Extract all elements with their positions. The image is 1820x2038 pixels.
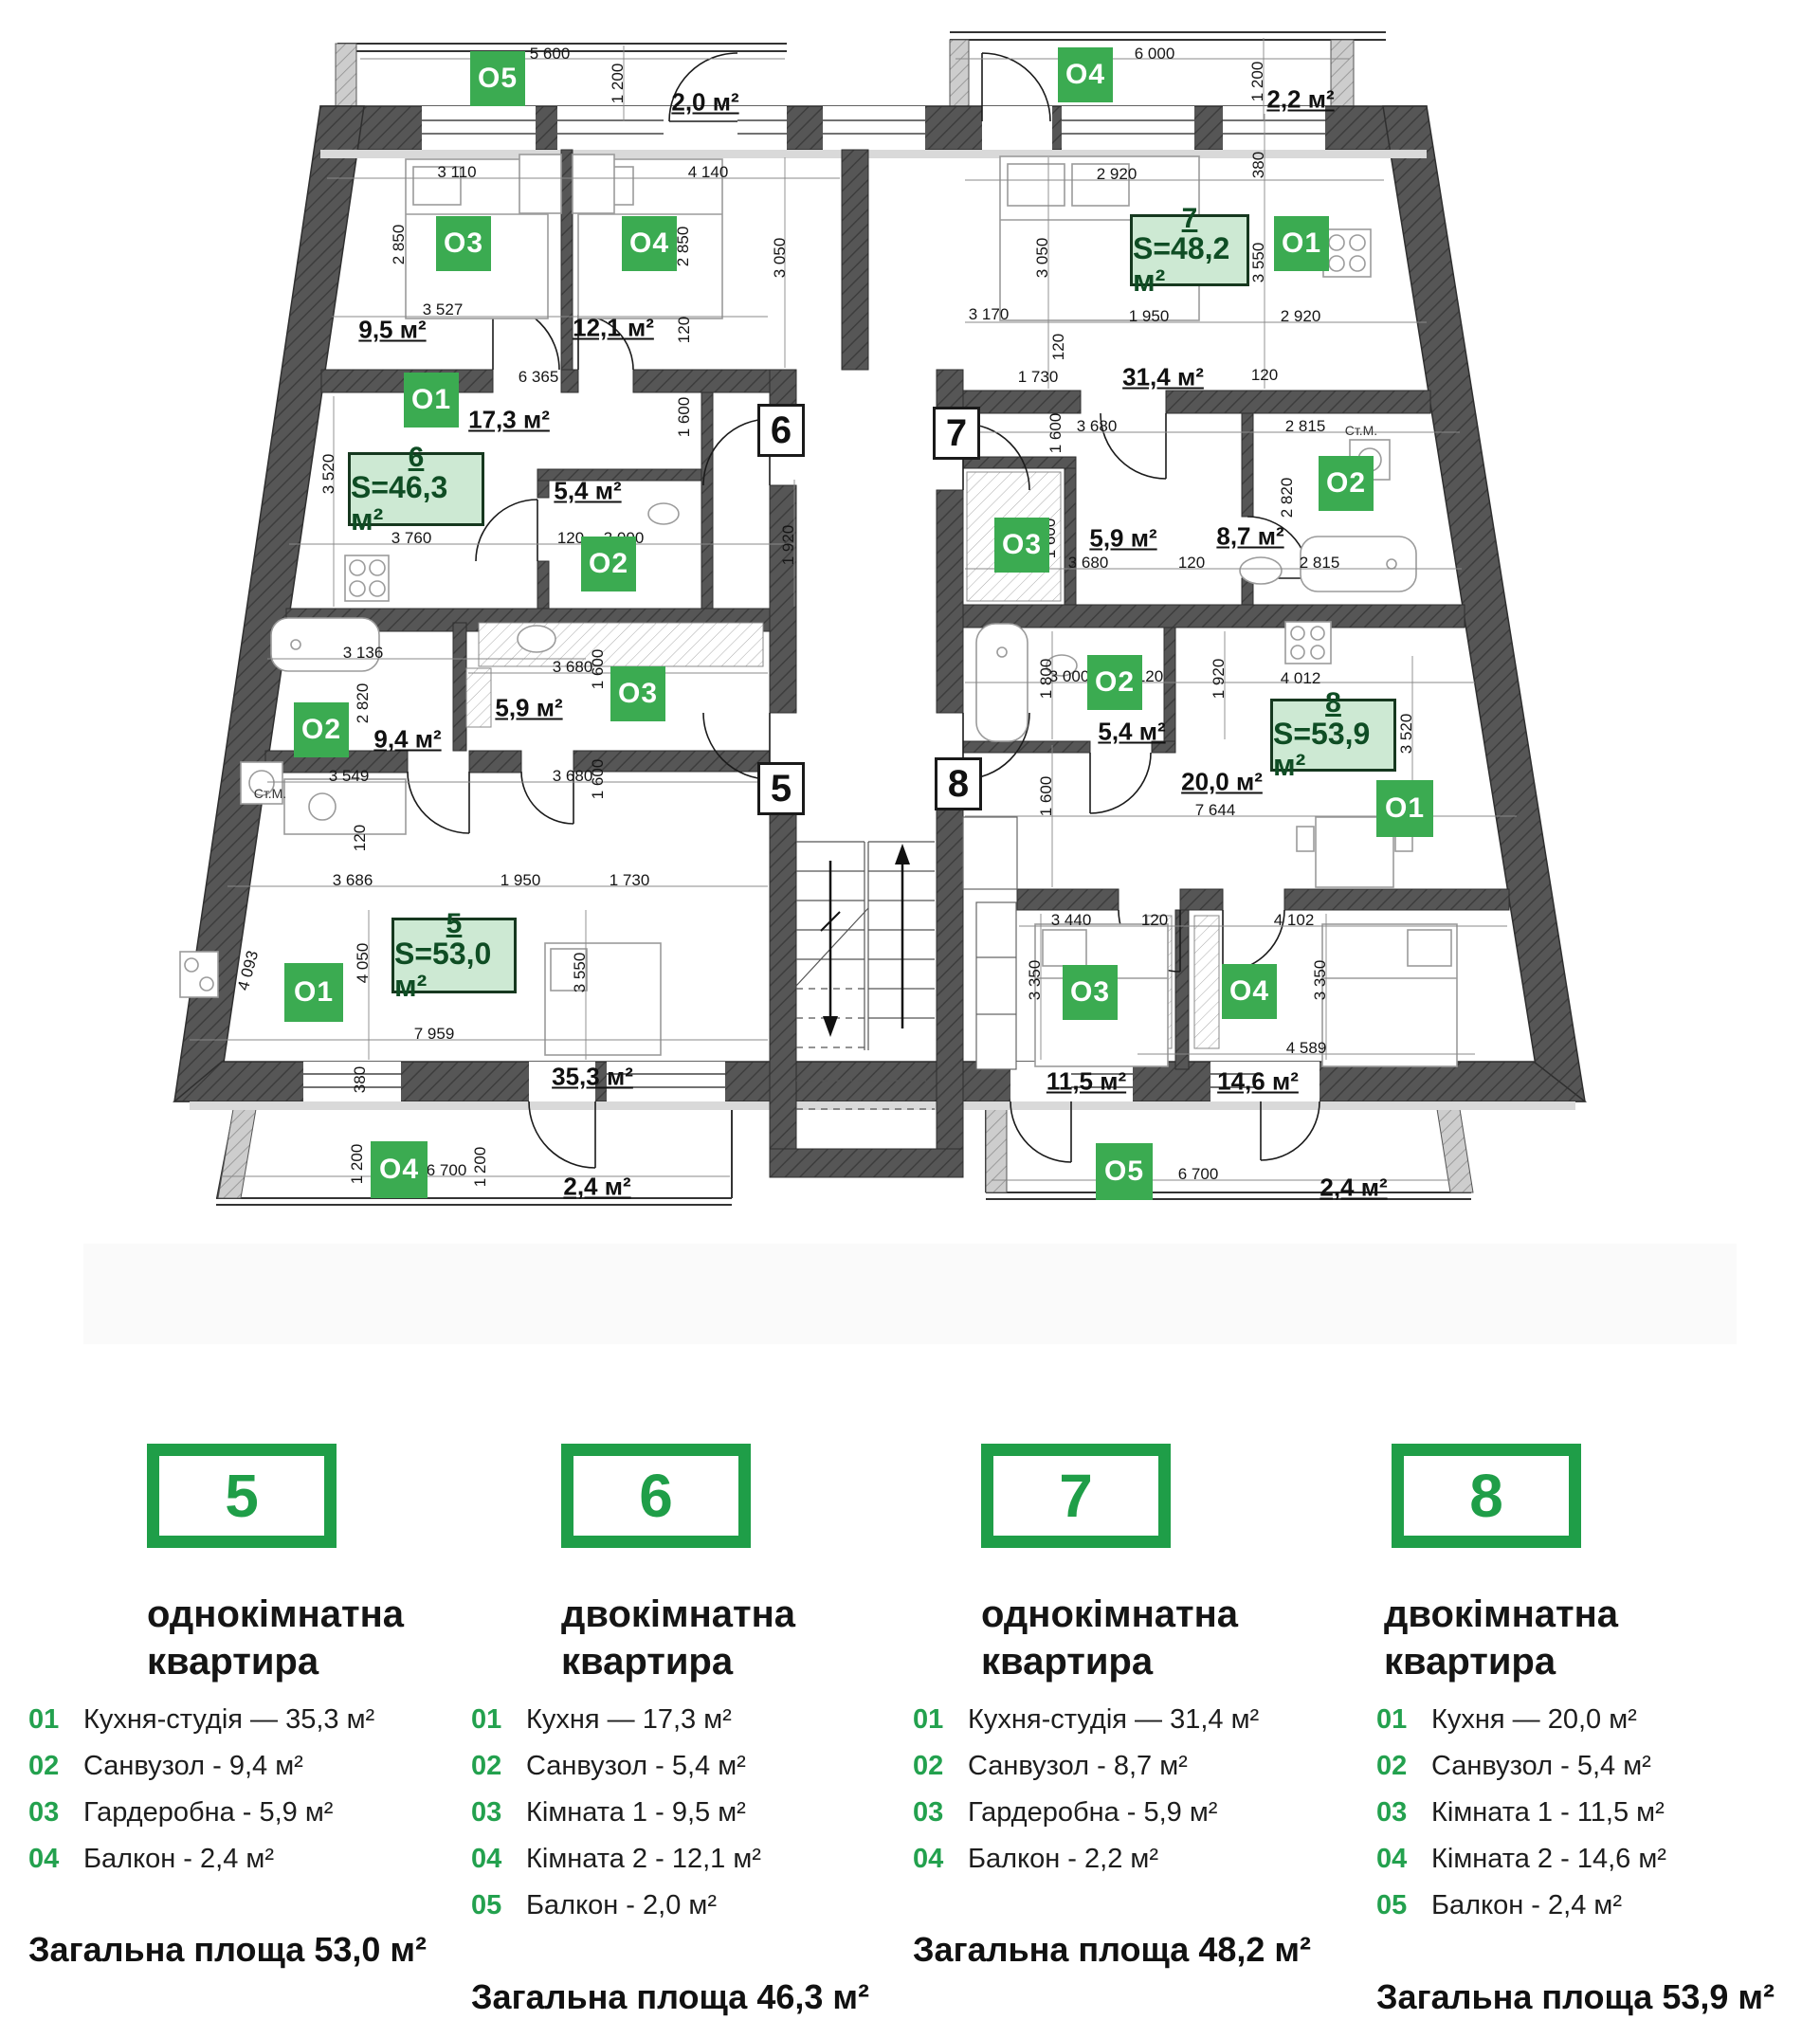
apartment-number: 6 bbox=[409, 443, 425, 473]
legend-room-code: 02 bbox=[471, 1751, 526, 1782]
legend-room-code: 01 bbox=[28, 1704, 83, 1736]
room-number-badge: O2 bbox=[581, 537, 636, 591]
legend-room-row: 03Гардеробна - 5,9 м² bbox=[28, 1797, 333, 1829]
dimension-label: 120 bbox=[1251, 366, 1278, 385]
dimension-label: 3 440 bbox=[1051, 911, 1092, 930]
apartment-area-box: 8S=53,9 м² bbox=[1270, 699, 1396, 772]
room-number-badge: O4 bbox=[622, 216, 677, 271]
dimension-label-vertical: 3 050 bbox=[1033, 238, 1052, 279]
dimension-label-vertical: 1 200 bbox=[609, 64, 628, 104]
room-number-badge: O5 bbox=[1096, 1143, 1153, 1200]
apartment-door-badge: 7 bbox=[933, 407, 980, 460]
apartment-area-box: 6S=46,3 м² bbox=[348, 452, 484, 526]
room-number-badge: O1 bbox=[284, 963, 343, 1022]
apartment-door-badge: 6 bbox=[757, 404, 805, 457]
room-number-badge: O4 bbox=[371, 1141, 428, 1198]
dimension-label-vertical: 120 bbox=[351, 825, 370, 851]
room-number-badge: O5 bbox=[470, 51, 525, 106]
legend-unit-type: квартира bbox=[561, 1638, 733, 1685]
legend-room-text: Кухня-студія — 35,3 м² bbox=[83, 1704, 374, 1736]
dimension-label: 1 950 bbox=[1129, 307, 1170, 326]
room-number-badge: O1 bbox=[404, 373, 459, 428]
legend-room-row: 05Балкон - 2,4 м² bbox=[1376, 1890, 1622, 1921]
room-area-label: 8,7 м² bbox=[1216, 522, 1283, 552]
dimension-label: 3 680 bbox=[1068, 554, 1109, 573]
legend-unit-type: однокімнатна bbox=[147, 1591, 404, 1638]
room-number-badge: O2 bbox=[294, 702, 349, 757]
legend-room-code: 04 bbox=[28, 1844, 83, 1875]
legend-room-row: 05Балкон - 2,0 м² bbox=[471, 1890, 717, 1921]
dimension-label-vertical: 3 520 bbox=[319, 454, 338, 495]
dimension-label-vertical: 1 920 bbox=[779, 525, 798, 566]
apartment-door-badge: 5 bbox=[757, 762, 805, 815]
legend-unit-badge-7: 7 bbox=[981, 1444, 1171, 1548]
legend-room-row: 02Санвузол - 9,4 м² bbox=[28, 1751, 303, 1782]
legend-room-code: 05 bbox=[471, 1890, 526, 1921]
legend-room-text: Кухня — 20,0 м² bbox=[1431, 1704, 1637, 1736]
dimension-label: 3 686 bbox=[333, 871, 373, 890]
legend-total-area: Загальна площа 53,0 м² bbox=[28, 1930, 427, 1970]
legend-unit-type: однокімнатна bbox=[981, 1591, 1238, 1638]
room-number-badge: O4 bbox=[1058, 47, 1113, 102]
dimension-label-vertical: 380 bbox=[351, 1066, 370, 1093]
dimension-label-vertical: 3 520 bbox=[1397, 714, 1416, 755]
dimension-label-vertical: 3 550 bbox=[571, 953, 590, 993]
room-area-label: 31,4 м² bbox=[1122, 363, 1204, 392]
dimension-label: 1 730 bbox=[1018, 368, 1059, 387]
legend-room-row: 03Гардеробна - 5,9 м² bbox=[913, 1797, 1217, 1829]
legend-unit-badge-5: 5 bbox=[147, 1444, 337, 1548]
washing-machine-label: Ст.М. bbox=[254, 786, 286, 801]
floorplan-page: 5 6006 0003 1104 1402 9203 5273 1701 950… bbox=[0, 0, 1820, 2038]
apartment-number: 7 bbox=[1182, 204, 1198, 234]
dimension-label-vertical: 1 600 bbox=[675, 397, 694, 438]
legend-room-row: 04Балкон - 2,4 м² bbox=[28, 1844, 274, 1875]
dimension-label: 7 644 bbox=[1195, 801, 1236, 820]
legend-room-code: 03 bbox=[471, 1797, 526, 1829]
dimension-label-vertical: 2 850 bbox=[390, 225, 409, 265]
room-number-badge: O1 bbox=[1376, 780, 1433, 837]
legend-room-text: Санвузол - 8,7 м² bbox=[968, 1751, 1188, 1782]
dimension-label: 4 589 bbox=[1286, 1039, 1327, 1058]
room-number-badge: O2 bbox=[1087, 655, 1142, 710]
dimension-label-vertical: 1 920 bbox=[1210, 659, 1228, 700]
dimension-label: 6 365 bbox=[519, 368, 559, 387]
dimension-label-vertical: 1 800 bbox=[1037, 659, 1056, 700]
legend-room-code: 02 bbox=[913, 1751, 968, 1782]
dimension-label: 3 110 bbox=[437, 163, 476, 182]
dimension-label-vertical: 3 550 bbox=[1249, 243, 1268, 283]
legend-room-code: 05 bbox=[1376, 1890, 1431, 1921]
legend-total-area: Загальна площа 46,3 м² bbox=[471, 1977, 869, 2017]
room-number-badge: O3 bbox=[1063, 965, 1118, 1020]
legend-room-text: Кімната 1 - 11,5 м² bbox=[1431, 1797, 1665, 1829]
legend-room-text: Кухня — 17,3 м² bbox=[526, 1704, 732, 1736]
room-number-badge: O1 bbox=[1274, 216, 1329, 271]
dimension-label: 2 920 bbox=[1281, 307, 1321, 326]
legend-room-text: Кімната 1 - 9,5 м² bbox=[526, 1797, 746, 1829]
legend-room-text: Санвузол - 5,4 м² bbox=[1431, 1751, 1651, 1782]
legend-room-row: 04Балкон - 2,2 м² bbox=[913, 1844, 1158, 1875]
room-area-label: 5,4 м² bbox=[1098, 718, 1165, 747]
room-area-label: 5,4 м² bbox=[554, 477, 621, 506]
legend-room-text: Кімната 2 - 14,6 м² bbox=[1431, 1844, 1666, 1875]
legend-room-text: Кухня-студія — 31,4 м² bbox=[968, 1704, 1259, 1736]
dimension-label: 4 140 bbox=[688, 163, 729, 182]
legend-room-code: 01 bbox=[1376, 1704, 1431, 1736]
dimension-label-vertical: 380 bbox=[1249, 152, 1268, 178]
legend-unit-type: квартира bbox=[147, 1638, 318, 1685]
legend-total-area: Загальна площа 48,2 м² bbox=[913, 1930, 1311, 1970]
legend-room-row: 03Кімната 1 - 11,5 м² bbox=[1376, 1797, 1665, 1829]
dimension-label: 2 815 bbox=[1300, 554, 1340, 573]
legend-room-row: 04Кімната 2 - 12,1 м² bbox=[471, 1844, 761, 1875]
dimension-label: 3 136 bbox=[343, 644, 384, 663]
legend-total-area: Загальна площа 53,9 м² bbox=[1376, 1977, 1774, 2017]
legend-room-text: Балкон - 2,2 м² bbox=[968, 1844, 1158, 1875]
room-area-label: 9,5 м² bbox=[358, 316, 426, 345]
dimension-label-vertical: 3 050 bbox=[771, 238, 790, 279]
legend-room-code: 03 bbox=[1376, 1797, 1431, 1829]
apartment-total-area: S=48,2 м² bbox=[1133, 233, 1247, 297]
legend-room-code: 01 bbox=[913, 1704, 968, 1736]
dimension-label: 3 680 bbox=[553, 658, 593, 677]
legend-room-text: Балкон - 2,0 м² bbox=[526, 1890, 717, 1921]
dimension-label-vertical: 120 bbox=[675, 317, 694, 343]
room-area-label: 2,0 м² bbox=[671, 88, 738, 118]
dimension-label-vertical: 2 850 bbox=[674, 227, 693, 267]
dimension-label: 3 680 bbox=[1077, 417, 1118, 436]
room-number-badge: O4 bbox=[1222, 964, 1277, 1019]
legend-room-code: 03 bbox=[913, 1797, 968, 1829]
dimension-label: 3 549 bbox=[329, 767, 370, 786]
apartment-number: 8 bbox=[1325, 688, 1341, 719]
dimension-label: 3 527 bbox=[423, 300, 464, 319]
legend-unit-type: двокімнатна bbox=[561, 1591, 795, 1638]
room-area-label: 11,5 м² bbox=[1046, 1067, 1126, 1097]
dimension-label-vertical: 2 820 bbox=[1278, 478, 1297, 519]
dimension-label-vertical: 2 820 bbox=[354, 683, 373, 724]
legend-room-text: Санвузол - 5,4 м² bbox=[526, 1751, 746, 1782]
dimension-label: 2 815 bbox=[1285, 417, 1326, 436]
legend-room-row: 01Кухня-студія — 35,3 м² bbox=[28, 1704, 374, 1736]
legend-room-text: Гардеробна - 5,9 м² bbox=[968, 1797, 1217, 1829]
dimension-label: 1 950 bbox=[500, 871, 541, 890]
legend-room-row: 02Санвузол - 8,7 м² bbox=[913, 1751, 1188, 1782]
room-area-label: 14,6 м² bbox=[1217, 1067, 1299, 1097]
legend-room-code: 04 bbox=[1376, 1844, 1431, 1875]
dimension-label-vertical: 3 350 bbox=[1026, 960, 1045, 1001]
dimension-label: 6 700 bbox=[427, 1161, 467, 1180]
dimension-label-vertical: 4 050 bbox=[354, 943, 373, 984]
room-area-label: 2,4 м² bbox=[563, 1173, 630, 1202]
legend-room-row: 01Кухня-студія — 31,4 м² bbox=[913, 1704, 1259, 1736]
apartment-total-area: S=53,9 м² bbox=[1273, 719, 1393, 782]
dimension-label-vertical: 1 200 bbox=[471, 1147, 490, 1188]
apartment-area-box: 5S=53,0 м² bbox=[391, 918, 517, 993]
legend-room-code: 01 bbox=[471, 1704, 526, 1736]
legend-room-text: Балкон - 2,4 м² bbox=[83, 1844, 274, 1875]
dimension-label: 2 920 bbox=[1097, 165, 1137, 184]
dimension-label: 7 959 bbox=[414, 1025, 455, 1044]
room-area-label: 2,4 м² bbox=[1319, 1174, 1387, 1203]
dimension-label: 3 680 bbox=[553, 767, 593, 786]
dimension-label-vertical: 1 600 bbox=[1046, 413, 1065, 454]
dimension-label-vertical: 1 200 bbox=[1248, 62, 1267, 102]
dimension-label: 120 bbox=[557, 529, 584, 548]
legend-unit-type: двокімнатна bbox=[1384, 1591, 1618, 1638]
legend-unit-badge-8: 8 bbox=[1392, 1444, 1581, 1548]
apartment-area-box: 7S=48,2 м² bbox=[1130, 214, 1249, 286]
dimension-label-vertical: 4 093 bbox=[234, 949, 263, 992]
dimension-label: 6 000 bbox=[1135, 45, 1175, 64]
legend-unit-type: квартира bbox=[1384, 1638, 1556, 1685]
dimension-label: 120 bbox=[1141, 911, 1168, 930]
room-area-label: 20,0 м² bbox=[1181, 768, 1263, 797]
dimension-label: 4 012 bbox=[1281, 669, 1321, 688]
room-number-badge: O2 bbox=[1319, 456, 1374, 511]
dimension-label-vertical: 120 bbox=[1049, 334, 1068, 360]
dimension-label: 5 600 bbox=[530, 45, 571, 64]
legend-unit-badge-6: 6 bbox=[561, 1444, 751, 1548]
apartment-door-badge: 8 bbox=[935, 757, 982, 810]
dimension-label: 120 bbox=[1178, 554, 1205, 573]
legend-room-code: 02 bbox=[1376, 1751, 1431, 1782]
legend-room-row: 02Санвузол - 5,4 м² bbox=[1376, 1751, 1651, 1782]
room-area-label: 5,9 м² bbox=[1089, 524, 1156, 554]
apartment-total-area: S=46,3 м² bbox=[351, 472, 482, 536]
legend-room-text: Кімната 2 - 12,1 м² bbox=[526, 1844, 761, 1875]
dimension-label-vertical: 1 600 bbox=[589, 649, 608, 690]
dimension-label: 4 102 bbox=[1274, 911, 1315, 930]
dimension-label: 1 730 bbox=[610, 871, 650, 890]
legend-room-row: 01Кухня — 17,3 м² bbox=[471, 1704, 732, 1736]
room-area-label: 17,3 м² bbox=[468, 406, 550, 435]
room-area-label: 35,3 м² bbox=[552, 1063, 633, 1092]
dimension-label-vertical: 1 200 bbox=[348, 1144, 367, 1185]
dimension-label-vertical: 3 350 bbox=[1311, 960, 1330, 1001]
room-number-badge: O3 bbox=[994, 518, 1049, 573]
legend-room-row: 03Кімната 1 - 9,5 м² bbox=[471, 1797, 746, 1829]
room-area-label: 5,9 м² bbox=[495, 694, 562, 723]
legend-unit-type: квартира bbox=[981, 1638, 1153, 1685]
room-number-badge: O3 bbox=[610, 666, 665, 721]
legend-room-text: Гардеробна - 5,9 м² bbox=[83, 1797, 333, 1829]
washing-machine-label: Ст.М. bbox=[1345, 423, 1377, 438]
apartment-total-area: S=53,0 м² bbox=[394, 938, 514, 1002]
dimension-label-vertical: 1 600 bbox=[589, 759, 608, 800]
dimension-label-vertical: 1 600 bbox=[1037, 776, 1056, 817]
room-number-badge: O3 bbox=[436, 216, 491, 271]
legend-room-row: 04Кімната 2 - 14,6 м² bbox=[1376, 1844, 1666, 1875]
legend-room-code: 03 bbox=[28, 1797, 83, 1829]
room-area-label: 12,1 м² bbox=[573, 314, 654, 343]
legend-room-code: 04 bbox=[471, 1844, 526, 1875]
legend-room-text: Балкон - 2,4 м² bbox=[1431, 1890, 1622, 1921]
legend-room-row: 01Кухня — 20,0 м² bbox=[1376, 1704, 1637, 1736]
apartment-number: 5 bbox=[446, 909, 463, 939]
room-area-label: 2,2 м² bbox=[1266, 85, 1334, 115]
legend-room-code: 02 bbox=[28, 1751, 83, 1782]
room-area-label: 9,4 м² bbox=[373, 725, 441, 755]
legend-room-text: Санвузол - 9,4 м² bbox=[83, 1751, 303, 1782]
dimension-label: 3 170 bbox=[969, 305, 1010, 324]
dimension-label: 6 700 bbox=[1178, 1165, 1219, 1184]
legend-room-row: 02Санвузол - 5,4 м² bbox=[471, 1751, 746, 1782]
legend-room-code: 04 bbox=[913, 1844, 968, 1875]
